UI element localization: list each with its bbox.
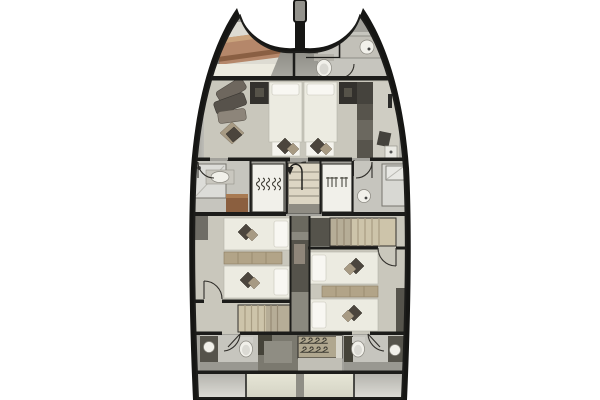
swim-steps-starboard [354,374,408,400]
swim-steps-port [192,374,246,400]
sideboard [224,252,282,264]
engine-hatch-center [258,335,298,373]
vent [388,94,392,108]
pillow-icon [312,302,326,328]
pillow-icon [274,221,288,247]
port-mid-bathroom [192,161,250,214]
forward-bulkhead [196,76,404,81]
twin-berth-aft [224,266,290,298]
mast-fitting-icon [294,0,306,22]
starboard-aft-head [344,334,404,373]
pillow-icon [272,84,299,95]
berth-port [269,82,302,156]
starboard-aft-stairs [310,218,396,246]
port-aft-stairs [238,305,290,332]
catamaran-deck-plan [0,0,600,400]
hanging-locker-port [252,164,284,212]
starboard-aft-cabin [308,216,408,334]
twin-berth-forward [310,252,378,284]
pillow-icon [274,269,288,295]
aft-hanging-locker [298,336,342,373]
center-keel-corridor [290,216,310,334]
pillow-icon [312,255,326,281]
sideboard [322,286,378,297]
transom-bulkhead [190,371,410,375]
transom-platforms [192,374,408,400]
sink-icon [358,190,371,203]
port-aft-head [200,334,258,373]
hanging-locker-starboard [322,164,352,212]
twin-berth-aft [310,299,378,331]
sink-icon [211,172,229,183]
sink-icon [360,40,374,54]
floor-plan-canvas [0,0,600,400]
starboard-mid-bathroom [354,161,406,214]
port-aft-cabin [192,216,290,334]
owner-cabin-forward [204,77,399,158]
wardrobe [357,82,373,158]
berth-starboard [304,82,337,156]
locker-door-edge [336,336,342,358]
sink-icon [390,345,401,356]
twin-berth-forward [224,218,290,250]
sink-icon [204,342,215,353]
forward-companionway-stairs [287,163,321,213]
pillow-icon [307,84,334,95]
stair-landing [288,204,320,213]
